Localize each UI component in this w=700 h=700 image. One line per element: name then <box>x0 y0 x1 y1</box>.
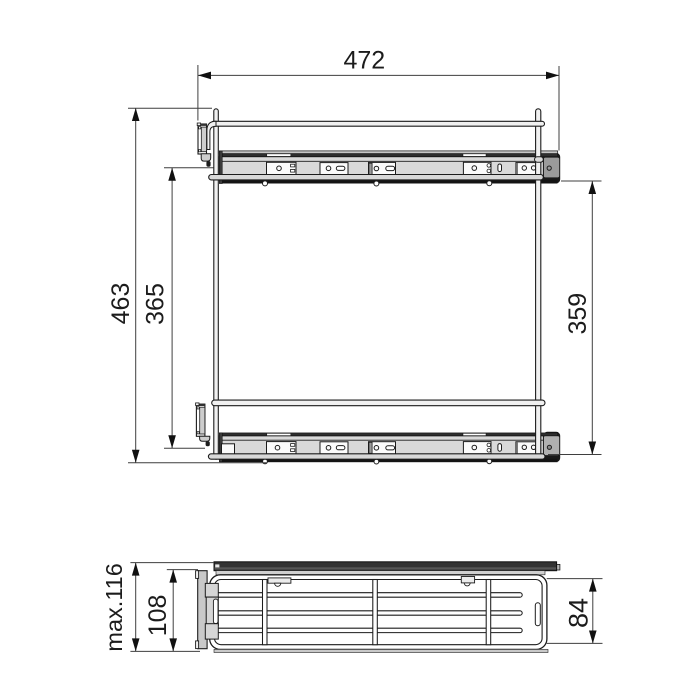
svg-text:108: 108 <box>144 595 172 637</box>
svg-text:359: 359 <box>564 293 592 335</box>
svg-text:365: 365 <box>142 283 170 325</box>
svg-text:472: 472 <box>343 46 385 74</box>
svg-text:max.116: max.116 <box>101 563 127 651</box>
svg-text:84: 84 <box>564 598 594 628</box>
svg-text:463: 463 <box>107 283 135 325</box>
